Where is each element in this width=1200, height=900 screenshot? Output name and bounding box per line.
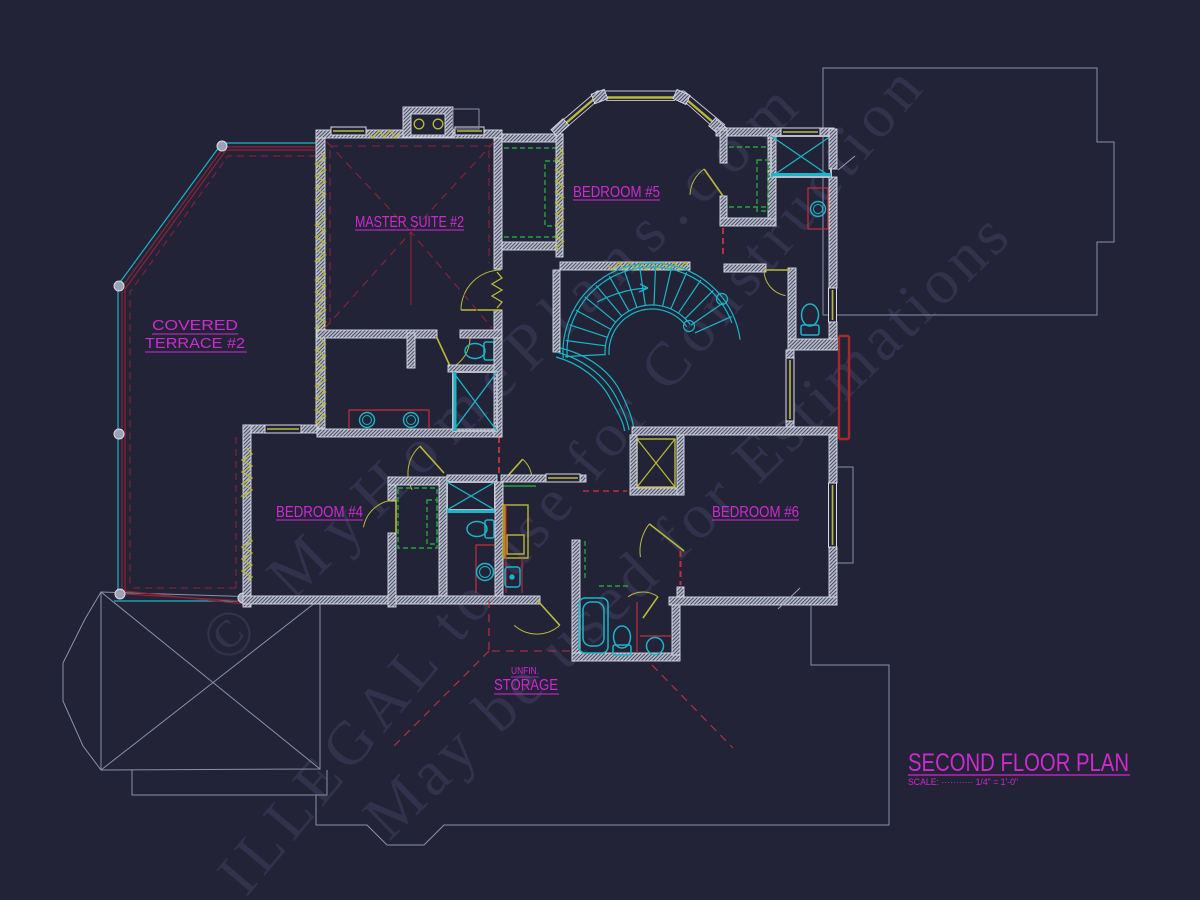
svg-text:COVERED: COVERED xyxy=(152,318,238,334)
svg-text:BEDROOM #4: BEDROOM #4 xyxy=(276,504,363,521)
svg-text:STORAGE: STORAGE xyxy=(494,677,558,694)
svg-text:SECOND FLOOR PLAN: SECOND FLOOR PLAN xyxy=(908,749,1129,777)
svg-text:TERRACE #2: TERRACE #2 xyxy=(145,336,245,352)
svg-text:BEDROOM #6: BEDROOM #6 xyxy=(712,504,799,521)
svg-text:UNFIN.: UNFIN. xyxy=(511,665,539,677)
svg-text:SCALE: ··········· 1/4" = 1'-0: SCALE: ··········· 1/4" = 1'-0" xyxy=(908,777,1018,787)
svg-text:BEDROOM #5: BEDROOM #5 xyxy=(573,184,660,201)
svg-text:MASTER SUITE #2: MASTER SUITE #2 xyxy=(355,214,464,231)
